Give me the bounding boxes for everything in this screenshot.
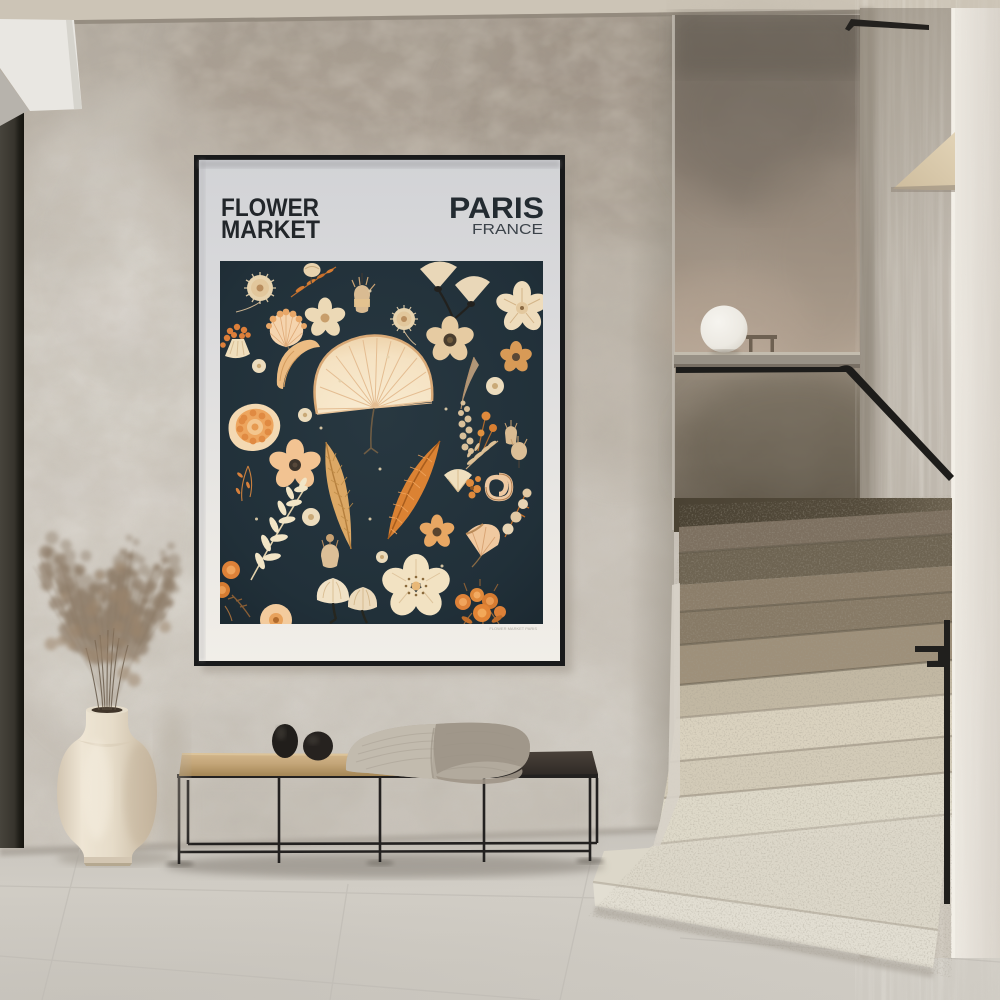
- svg-text:FLOWER MARKET PARIS: FLOWER MARKET PARIS: [489, 626, 537, 631]
- svg-text:MARKET: MARKET: [221, 216, 320, 244]
- svg-text:FRANCE: FRANCE: [472, 221, 543, 238]
